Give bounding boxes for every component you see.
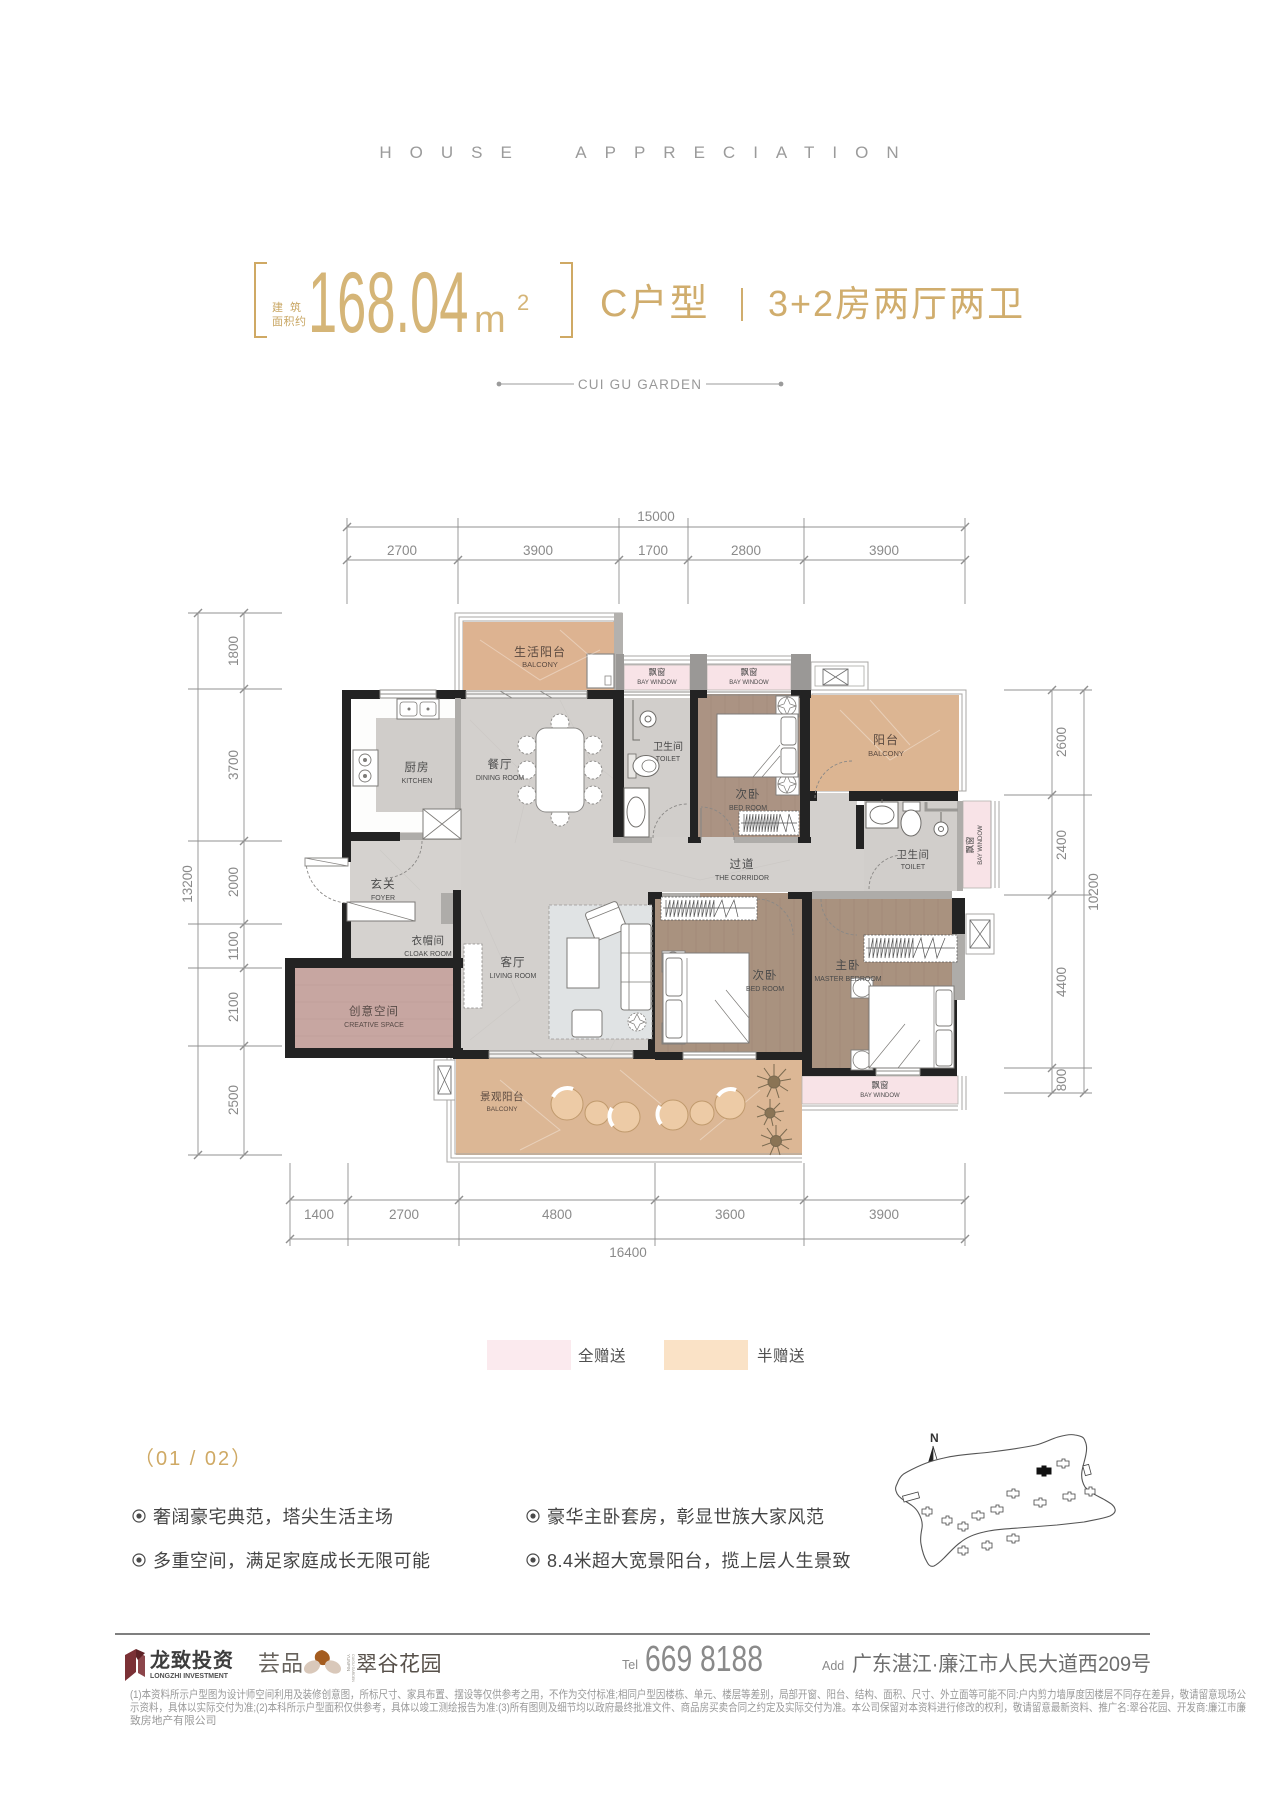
svg-text:过道: 过道	[730, 857, 755, 871]
svg-text:CUI GU GARDEN: CUI GU GARDEN	[578, 377, 702, 392]
svg-text:创意空间: 创意空间	[349, 1004, 399, 1018]
svg-text:MASTER BEDROOM: MASTER BEDROOM	[814, 976, 881, 983]
svg-text:2700: 2700	[387, 543, 417, 558]
svg-text:致房地产有限公司: 致房地产有限公司	[130, 1713, 216, 1727]
svg-text:4400: 4400	[1054, 967, 1069, 997]
svg-text:2800: 2800	[731, 543, 761, 558]
svg-text:广东湛江·廉江市人民大道西209号: 广东湛江·廉江市人民大道西209号	[852, 1653, 1151, 1676]
svg-text:2600: 2600	[1054, 727, 1069, 757]
svg-text:15000: 15000	[637, 509, 675, 524]
svg-text:阳台: 阳台	[873, 732, 899, 747]
svg-text:THE CORRIDOR: THE CORRIDOR	[715, 875, 769, 882]
svg-text:BAY WINDOW: BAY WINDOW	[860, 1093, 900, 1099]
svg-text:2500: 2500	[226, 1085, 241, 1115]
svg-text:建筑: 建筑	[272, 300, 308, 314]
svg-text:TOILET: TOILET	[901, 864, 926, 871]
svg-text:1400: 1400	[304, 1207, 334, 1222]
svg-text:3+2房两厅两卫: 3+2房两厅两卫	[768, 283, 1025, 324]
svg-text:3900: 3900	[869, 543, 899, 558]
svg-text:3900: 3900	[869, 1207, 899, 1222]
svg-text:餐厅: 餐厅	[488, 757, 513, 771]
svg-text:景观阳台: 景观阳台	[480, 1090, 524, 1103]
svg-text:BAY WINDOW: BAY WINDOW	[978, 825, 984, 865]
svg-text:CLOAK ROOM: CLOAK ROOM	[404, 951, 452, 958]
svg-text:2100: 2100	[226, 992, 241, 1022]
svg-text:卫生间: 卫生间	[653, 740, 683, 753]
svg-text:BALCONY: BALCONY	[868, 749, 904, 758]
svg-text:BED ROOM: BED ROOM	[729, 805, 767, 812]
svg-text:C户型: C户型	[600, 283, 709, 325]
svg-text:BED ROOM: BED ROOM	[746, 986, 784, 993]
svg-text:（01 / 02）: （01 / 02）	[134, 1447, 253, 1470]
svg-text:HOUSE APPRECIATION: HOUSE APPRECIATION	[379, 143, 916, 162]
svg-text:2400: 2400	[1054, 830, 1069, 860]
svg-text:8.4米超大宽景阳台，揽上层人生景致: 8.4米超大宽景阳台，揽上层人生景致	[547, 1551, 851, 1571]
svg-text:BALCONY: BALCONY	[486, 1106, 518, 1113]
svg-text:YUNPIN: YUNPIN	[346, 1654, 351, 1671]
svg-text:半赠送: 半赠送	[757, 1347, 805, 1365]
svg-text:BAY WINDOW: BAY WINDOW	[637, 680, 677, 686]
svg-text:飘窗: 飘窗	[871, 1080, 888, 1090]
svg-text:3600: 3600	[715, 1207, 745, 1222]
svg-text:CREATIVE SPACE: CREATIVE SPACE	[344, 1022, 404, 1029]
svg-text:全赠送: 全赠送	[578, 1347, 626, 1365]
svg-text:面积约: 面积约	[272, 315, 307, 328]
svg-text:翠谷花园: 翠谷花园	[356, 1653, 442, 1676]
svg-text:16400: 16400	[609, 1245, 647, 1260]
svg-text:卫生间: 卫生间	[897, 848, 930, 861]
svg-text:168.04: 168.04	[308, 256, 468, 351]
svg-text:芸品: 芸品	[258, 1651, 304, 1676]
svg-text:LIVING ROOM: LIVING ROOM	[490, 973, 537, 980]
svg-text:龙致投资: 龙致投资	[150, 1648, 234, 1672]
svg-text:(1)本资料所示户型图为设计师空间利用及装修创意图，所标尺寸: (1)本资料所示户型图为设计师空间利用及装修创意图，所标尺寸、家具布置、摆设等仅…	[130, 1687, 1246, 1701]
svg-text:LONGZHI INVESTMENT: LONGZHI INVESTMENT	[150, 1671, 228, 1680]
svg-text:3900: 3900	[523, 543, 553, 558]
svg-text:800: 800	[1054, 1069, 1069, 1092]
svg-text:客厅: 客厅	[501, 955, 526, 969]
svg-text:10200: 10200	[1086, 873, 1101, 911]
svg-text:N: N	[930, 1431, 939, 1445]
svg-text:CUIGU GARDEN: CUIGU GARDEN	[351, 1654, 355, 1682]
svg-text:主卧: 主卧	[836, 959, 861, 972]
svg-text:FOYER: FOYER	[371, 895, 395, 902]
svg-text:TOILET: TOILET	[656, 756, 681, 763]
svg-text:Tel: Tel	[622, 1658, 638, 1672]
svg-text:玄关: 玄关	[371, 877, 396, 891]
svg-text:2700: 2700	[389, 1207, 419, 1222]
svg-text:13200: 13200	[180, 865, 195, 903]
svg-text:示资料，具体以实际交付为准;(2)本科所示户型面积仅供参考，: 示资料，具体以实际交付为准;(2)本科所示户型面积仅供参考，具体以竣工测绘报告为…	[130, 1700, 1246, 1714]
svg-text:4800: 4800	[542, 1207, 572, 1222]
svg-text:奢阔豪宅典范，塔尖生活主场: 奢阔豪宅典范，塔尖生活主场	[153, 1507, 394, 1527]
svg-text:生活阳台: 生活阳台	[514, 644, 566, 659]
svg-text:次卧: 次卧	[753, 968, 778, 982]
svg-text:BALCONY: BALCONY	[522, 660, 558, 669]
svg-text:DINING ROOM: DINING ROOM	[476, 775, 524, 782]
svg-text:BAY WINDOW: BAY WINDOW	[729, 680, 769, 686]
svg-text:669 8188: 669 8188	[645, 1638, 763, 1679]
svg-text:飘窗: 飘窗	[740, 667, 757, 677]
svg-text:m: m	[474, 299, 506, 341]
svg-text:飘窗: 飘窗	[648, 667, 665, 677]
svg-text:1800: 1800	[226, 636, 241, 666]
svg-text:飘窗: 飘窗	[965, 836, 975, 853]
svg-text:厨房: 厨房	[405, 761, 430, 774]
svg-text:3700: 3700	[226, 750, 241, 780]
svg-text:2: 2	[517, 290, 529, 315]
svg-text:衣帽间: 衣帽间	[412, 934, 445, 947]
svg-text:多重空间，满足家庭成长无限可能: 多重空间，满足家庭成长无限可能	[153, 1551, 431, 1571]
svg-text:次卧: 次卧	[736, 787, 761, 801]
svg-text:2000: 2000	[226, 867, 241, 897]
svg-text:1100: 1100	[226, 931, 241, 960]
svg-text:豪华主卧套房，彰显世族大家风范: 豪华主卧套房，彰显世族大家风范	[547, 1507, 825, 1527]
svg-text:KITCHEN: KITCHEN	[402, 778, 433, 785]
svg-text:Add: Add	[822, 1659, 844, 1673]
svg-text:1700: 1700	[638, 543, 668, 558]
